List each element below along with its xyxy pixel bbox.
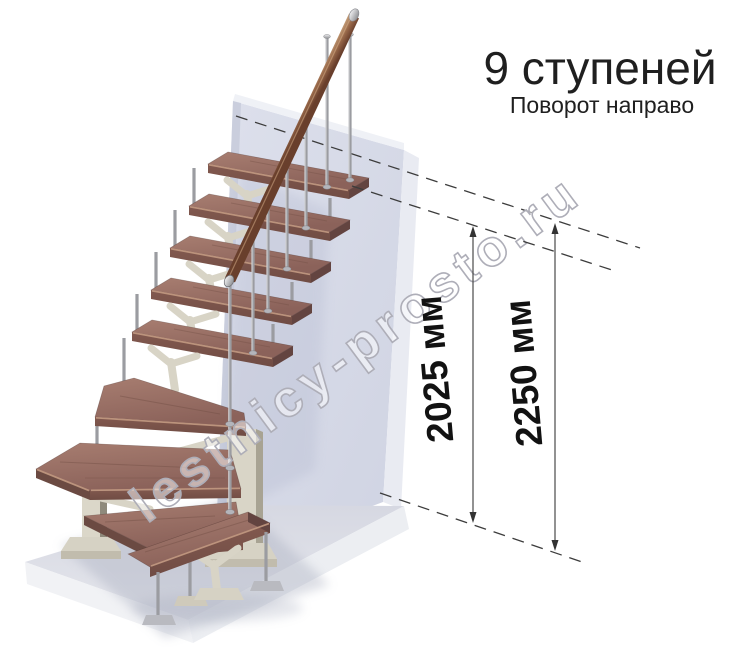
- staircase-diagram-page: lestnicy-prosto.ru 2025 мм 2250 мм 9 сту…: [0, 0, 744, 655]
- support-bracket: [151, 348, 197, 390]
- staircase-illustration: lestnicy-prosto.ru 2025 мм 2250 мм 9 сту…: [0, 0, 744, 655]
- dimension-line-2250: [552, 223, 559, 551]
- page-subtitle: Поворот направо: [510, 92, 694, 118]
- leg-base-plate: [142, 615, 176, 625]
- dashed-level-line-floor: [380, 493, 582, 562]
- dimension-label-2250: 2250 мм: [497, 298, 551, 448]
- dimension-label-2025: 2025 мм: [408, 294, 462, 444]
- leg-base-plate: [250, 581, 284, 591]
- page-title: 9 ступеней: [483, 42, 716, 94]
